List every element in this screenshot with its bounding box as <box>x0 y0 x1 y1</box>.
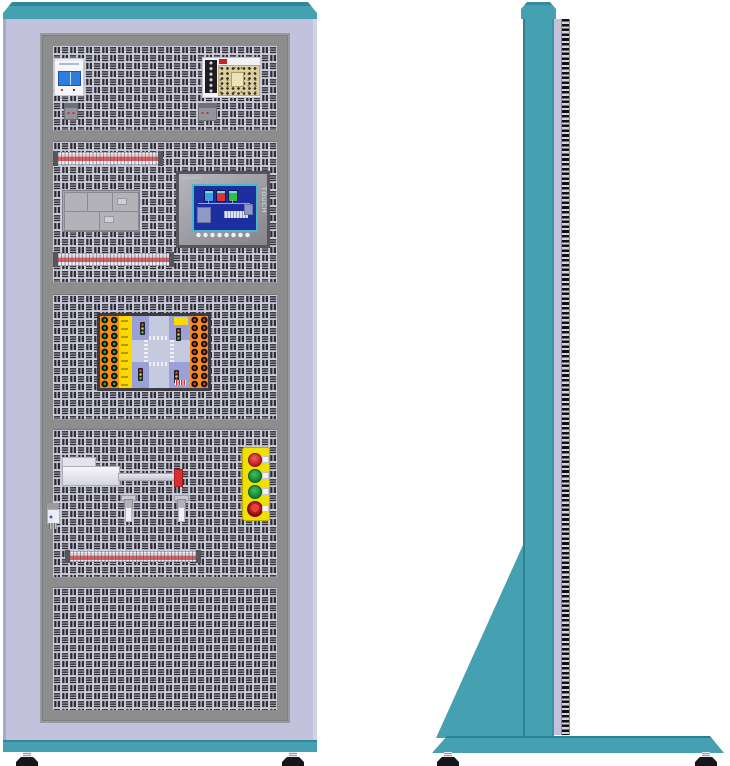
red-push-button[interactable] <box>248 453 262 467</box>
sensor-body <box>125 507 132 522</box>
button-label-tag <box>262 472 269 479</box>
side-gusset-support <box>436 545 523 738</box>
plc-module <box>64 211 100 231</box>
switching-power-supply <box>202 57 261 98</box>
crosswalk <box>149 336 169 340</box>
rail-end-stop <box>169 252 174 267</box>
button-label-tag <box>262 488 269 495</box>
plc-module-block <box>62 190 140 232</box>
proximity-sensor-1 <box>121 495 135 521</box>
cabinet-top-cap <box>3 2 317 19</box>
leveling-foot-front-left <box>16 752 38 766</box>
rail-terminals <box>54 253 173 266</box>
divider-3 <box>53 419 277 430</box>
breaker-marking <box>59 63 79 65</box>
clamp-cap <box>199 104 216 108</box>
proximity-sensor-2 <box>174 495 188 521</box>
rail-clamp-right <box>198 103 217 121</box>
terminal-rail-3 <box>66 551 200 562</box>
cylinder-tip-flag <box>174 469 183 487</box>
leveling-foot-side-left <box>437 752 459 766</box>
relay-module <box>47 503 59 529</box>
green-push-button-1[interactable] <box>248 469 262 483</box>
perforated-panel-5 <box>53 588 277 710</box>
clamp-cap <box>65 104 77 108</box>
side-view <box>400 0 730 766</box>
plc-label-tag <box>117 198 127 205</box>
output-terminal-strip[interactable] <box>190 316 208 388</box>
plc-label-tag <box>104 216 114 223</box>
screen-pipe <box>208 200 209 204</box>
button-label-tag <box>262 505 269 512</box>
hmi-touch-panel: SIEMENS TOUCH <box>176 171 270 248</box>
front-view: SIEMENS TOUCH <box>0 0 330 766</box>
leveling-foot-side-right <box>695 752 717 766</box>
emergency-stop-button[interactable] <box>247 501 263 517</box>
divider-2 <box>53 282 277 295</box>
tank-lid <box>229 191 237 193</box>
rail-end-stop <box>53 252 58 267</box>
side-mounting-tooth-strip <box>561 19 570 735</box>
tank-lid <box>205 191 213 193</box>
rail-end-stop <box>158 151 163 166</box>
stage: SIEMENS TOUCH <box>0 0 730 766</box>
screen-vessel <box>197 207 211 223</box>
clamp-dots <box>200 110 210 116</box>
rail-end-stop <box>196 550 201 563</box>
rail-terminals <box>66 551 200 562</box>
side-top-cap <box>521 2 556 19</box>
intersection-graphic <box>132 316 190 388</box>
side-column <box>523 19 554 737</box>
screen-pipe <box>198 203 250 204</box>
leveling-foot-front-right <box>282 752 304 766</box>
terminal-rail-2 <box>54 253 173 266</box>
breaker-pole-divider <box>70 72 71 85</box>
divider-4 <box>53 577 277 588</box>
crosswalk <box>144 340 148 362</box>
relay-body <box>47 509 60 524</box>
foot-pad <box>437 757 459 766</box>
input-terminal-strip[interactable] <box>100 316 119 388</box>
breaker-terminal-dots <box>59 88 79 92</box>
base-strip <box>3 740 317 752</box>
corner-marker <box>174 317 188 325</box>
divider-1 <box>53 130 277 142</box>
crosswalk <box>149 362 169 366</box>
screen-tank-green <box>228 190 238 202</box>
traffic-training-board <box>97 313 211 391</box>
circuit-breaker <box>54 58 84 96</box>
pneumatic-cylinder <box>62 466 120 486</box>
psu-terminal-strip <box>205 60 217 93</box>
terminal-rail-1 <box>54 152 162 165</box>
hmi-function-keys[interactable] <box>195 232 251 238</box>
breaker-toggle[interactable] <box>58 71 81 86</box>
relay-pins <box>49 523 57 529</box>
psu-transformer <box>231 72 244 87</box>
button-label-tag <box>262 456 269 463</box>
foot-pad <box>282 757 304 766</box>
clamp-dots <box>66 110 76 116</box>
board-logo <box>175 380 186 385</box>
traffic-light-2 <box>176 328 181 341</box>
psu-brand-label <box>219 59 227 64</box>
foot-pad <box>695 757 717 766</box>
rail-end-stop <box>53 151 58 166</box>
screen-pipe <box>232 200 233 204</box>
traffic-light-3 <box>138 368 143 381</box>
sensor-body <box>178 507 185 522</box>
screen-small-unit <box>244 204 253 215</box>
hmi-screen[interactable] <box>192 184 258 232</box>
rail-terminals <box>54 152 162 165</box>
foot-pad <box>16 757 38 766</box>
screen-tank-blue <box>204 190 214 202</box>
terminal-label-strip <box>119 316 132 388</box>
push-button-station <box>242 447 270 521</box>
crosswalk <box>170 340 174 362</box>
rail-end-stop <box>65 550 70 563</box>
side-base-plate <box>432 736 724 753</box>
tank-lid <box>217 191 225 193</box>
cylinder-rod <box>118 473 178 481</box>
traffic-light-1 <box>140 322 145 335</box>
hmi-brand-label: SIEMENS <box>182 175 202 180</box>
plc-module <box>64 192 88 212</box>
screen-tank-red <box>216 190 226 202</box>
rail-clamp-left <box>64 103 78 120</box>
hmi-touch-label: TOUCH <box>260 187 266 213</box>
road-vertical <box>149 316 169 388</box>
green-push-button-2[interactable] <box>248 485 262 499</box>
plc-module <box>87 192 113 212</box>
